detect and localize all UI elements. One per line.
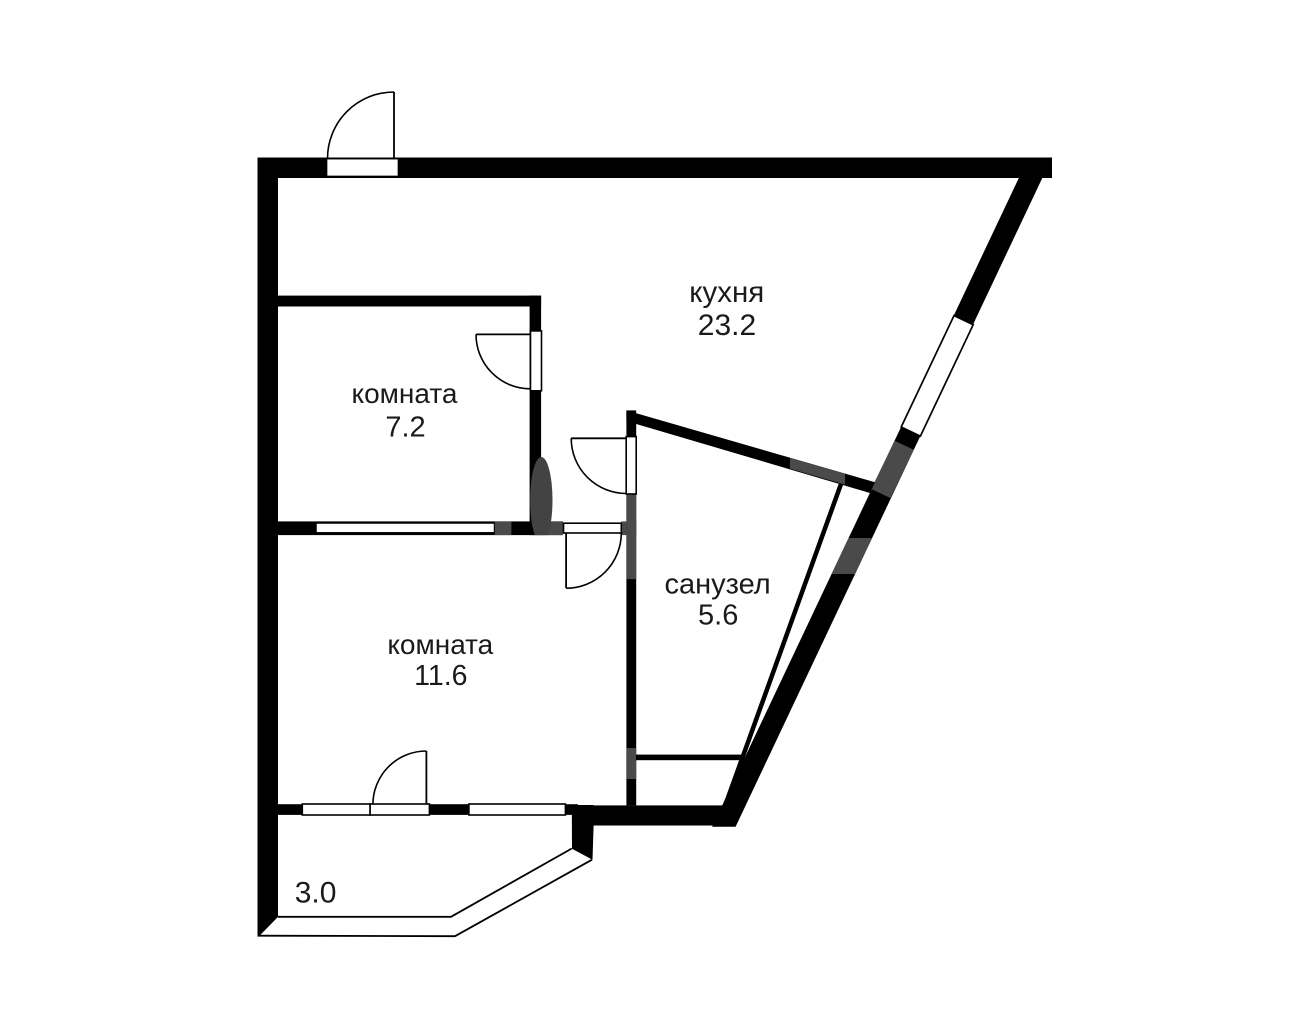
svg-text:11.6: 11.6 (414, 660, 467, 692)
svg-text:7.2: 7.2 (385, 412, 425, 444)
svg-text:комната: комната (352, 378, 458, 409)
svg-text:3.0: 3.0 (295, 877, 337, 910)
svg-text:5.6: 5.6 (698, 600, 738, 632)
svg-text:кухня: кухня (689, 276, 764, 309)
svg-text:23.2: 23.2 (698, 309, 756, 342)
svg-text:санузел: санузел (664, 569, 770, 601)
svg-text:комната: комната (387, 629, 493, 660)
